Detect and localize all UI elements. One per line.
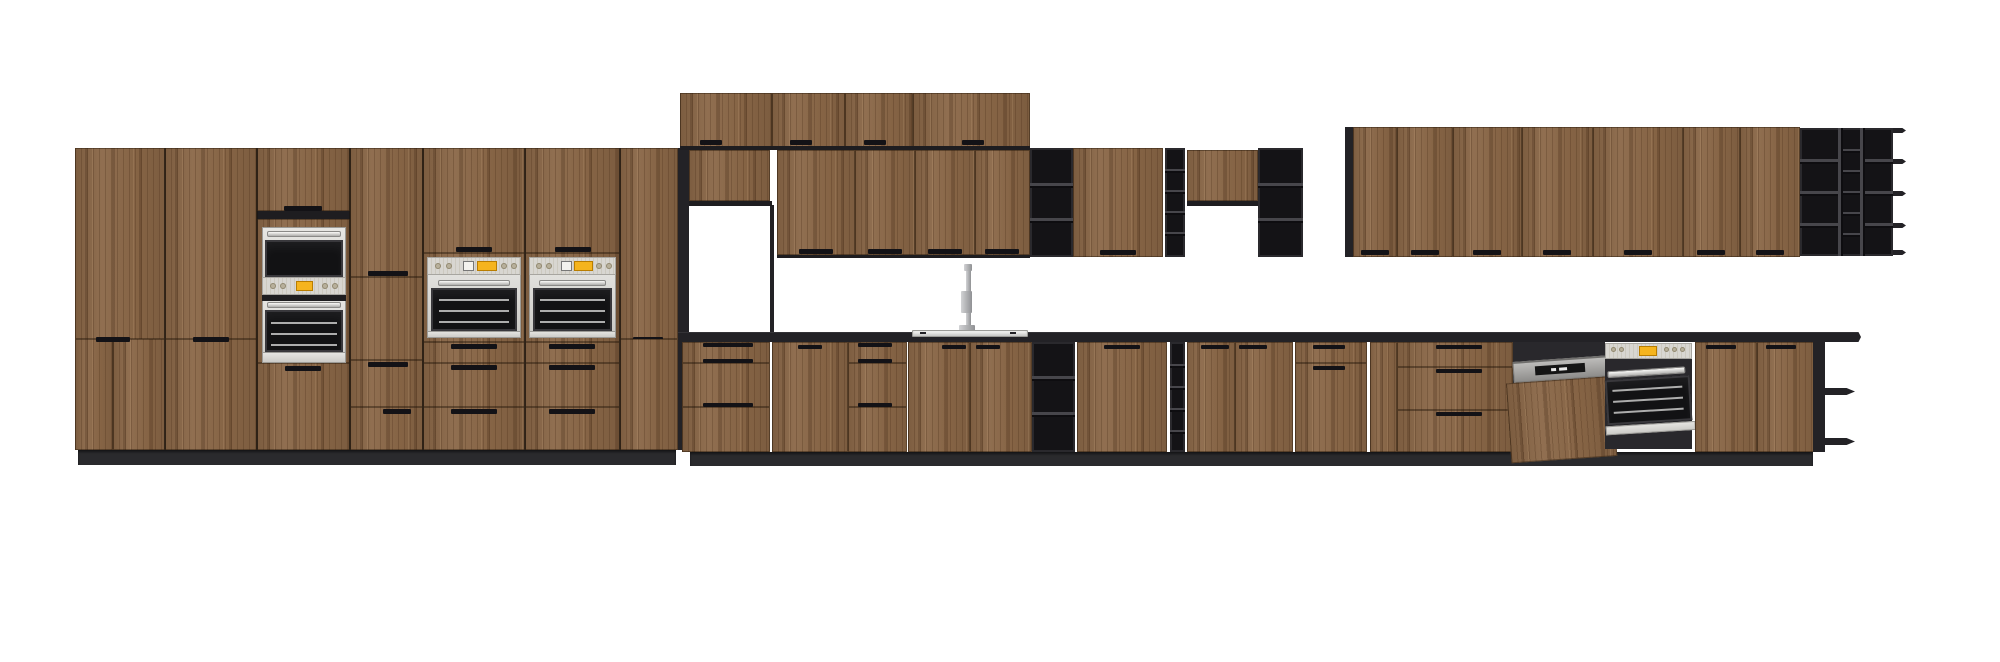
tall-cabinet-door[interactable] <box>165 148 257 339</box>
shelf-board <box>1800 223 1838 228</box>
oven-handle <box>267 302 341 308</box>
program-icon <box>561 261 572 271</box>
cabinet-seam <box>256 148 258 450</box>
wall-cabinet-door[interactable] <box>689 150 770 201</box>
oven-display <box>1639 346 1657 356</box>
cabinet-handle[interactable] <box>451 344 497 349</box>
wall-oven[interactable] <box>529 257 616 338</box>
cabinet-seam <box>619 148 621 450</box>
control-dial[interactable] <box>1611 347 1616 352</box>
oven-rack <box>1613 397 1683 403</box>
open-shelf-unit[interactable] <box>1032 342 1075 452</box>
oven-rack <box>271 344 337 346</box>
cabinet-handle[interactable] <box>549 344 595 349</box>
shelf-board <box>1170 408 1185 412</box>
base-cabinet-door[interactable] <box>1235 342 1293 452</box>
cabinet-handle[interactable] <box>1361 250 1389 255</box>
control-dial[interactable] <box>536 263 542 269</box>
control-dial[interactable] <box>501 263 507 269</box>
oven-window <box>431 288 517 331</box>
oven-control-panel <box>529 257 616 275</box>
tall-cabinet-door[interactable] <box>75 339 113 450</box>
open-shelf-unit[interactable] <box>1258 148 1303 257</box>
cabinet-handle[interactable] <box>864 140 886 145</box>
cabinet-handle[interactable] <box>858 403 892 407</box>
cabinet-seam <box>524 148 526 450</box>
wall-cabinet-door[interactable] <box>680 93 772 148</box>
oven-gap <box>262 295 346 301</box>
end-shelf-board <box>1825 438 1855 445</box>
microwave-window <box>265 240 343 277</box>
cabinet-handle[interactable] <box>193 337 229 342</box>
shelf-edge-tab <box>1893 191 1906 196</box>
wall-cabinet-door[interactable] <box>1683 127 1740 257</box>
oven-control-panel <box>427 257 521 275</box>
oven-window <box>265 310 343 352</box>
cabinet-handle[interactable] <box>1756 250 1784 255</box>
shelf-board <box>1165 169 1185 173</box>
cabinet-handle[interactable] <box>858 359 892 363</box>
cabinet-handle[interactable] <box>1313 366 1345 370</box>
wall-cabinet-door[interactable] <box>1593 127 1683 257</box>
wall-oven[interactable] <box>427 257 521 338</box>
cabinet-handle[interactable] <box>703 359 753 363</box>
base-cabinet-door[interactable] <box>772 342 848 452</box>
cabinet-handle[interactable] <box>383 409 411 414</box>
shelf-board <box>1800 191 1838 196</box>
control-dial[interactable] <box>1664 347 1669 352</box>
end-panel <box>1813 342 1825 452</box>
shelf-board <box>1843 233 1860 237</box>
shelf-board <box>1030 183 1073 188</box>
wall-cabinet-door[interactable] <box>855 150 915 255</box>
cabinet-seam <box>349 148 351 450</box>
faucet-cap <box>964 264 972 271</box>
base-cabinet-door[interactable] <box>1187 342 1235 452</box>
cabinet-handle[interactable] <box>451 365 497 370</box>
end-shelf-board <box>1825 388 1855 395</box>
oven-rack <box>439 310 509 312</box>
base-cabinet-door[interactable] <box>1695 342 1757 452</box>
microwave-display <box>296 281 313 291</box>
tall-cabinet-door[interactable] <box>113 339 165 450</box>
base-cabinet-door[interactable] <box>1757 342 1815 452</box>
wall-cabinet-door[interactable] <box>1073 148 1163 257</box>
cabinet-handle[interactable] <box>1436 369 1482 373</box>
shelf-board <box>1032 376 1075 381</box>
kitchen-elevation-canvas: Kitchen cabinetry elevation render <box>0 0 2000 662</box>
oven-rack <box>540 299 605 301</box>
microwave-control-panel <box>262 277 346 295</box>
open-shelf-unit[interactable] <box>1800 128 1893 256</box>
drawer-front[interactable] <box>848 407 907 452</box>
control-dial[interactable] <box>1672 347 1677 352</box>
base-cabinet-door[interactable] <box>1295 363 1367 452</box>
cabinet-handle[interactable] <box>368 271 408 276</box>
tall-plinth <box>78 450 676 465</box>
built-in-oven-door[interactable] <box>1602 365 1696 436</box>
control-dial[interactable] <box>1619 347 1624 352</box>
cabinet-handle[interactable] <box>976 345 1000 349</box>
oven-display <box>477 261 497 271</box>
wall-cabinet-door[interactable] <box>1397 127 1453 257</box>
oven-window <box>533 288 612 331</box>
oven-display <box>574 261 593 271</box>
wall-cabinet-door[interactable] <box>1740 127 1800 257</box>
shelf-board <box>1030 218 1073 223</box>
tall-cabinet-door[interactable] <box>423 148 525 253</box>
shelf-board <box>1165 232 1185 236</box>
wall-cabinet-shadow <box>1187 201 1260 206</box>
oven-bottom-trim <box>427 331 521 338</box>
oven-rack <box>439 299 509 301</box>
cabinet-handle[interactable] <box>858 343 892 347</box>
tall-cabinet-door[interactable] <box>165 339 257 450</box>
cabinet-handle[interactable] <box>1624 250 1652 255</box>
control-dial[interactable] <box>435 263 441 269</box>
shelf-board <box>1170 430 1185 434</box>
control-dial[interactable] <box>270 283 276 289</box>
control-dial[interactable] <box>546 263 552 269</box>
tall-cabinet-door[interactable] <box>525 148 620 253</box>
cabinet-handle[interactable] <box>1436 412 1482 416</box>
dishwasher[interactable] <box>1504 352 1619 463</box>
shelf-board <box>1843 191 1860 195</box>
shelf-board <box>1170 364 1185 368</box>
drawer-front[interactable] <box>350 277 423 360</box>
shelf-board <box>1258 183 1303 188</box>
wall-cabinet-door[interactable] <box>915 150 975 255</box>
cabinet-side-panel <box>1345 127 1353 257</box>
tall-cabinet-door[interactable] <box>620 148 678 339</box>
cabinet-handle[interactable] <box>1766 345 1796 349</box>
microwave[interactable] <box>262 227 346 295</box>
cabinet-handle[interactable] <box>1411 250 1439 255</box>
window-frame <box>770 205 774 332</box>
cabinet-handle[interactable] <box>928 249 962 254</box>
cabinet-handle[interactable] <box>285 366 321 371</box>
wall-cabinet-shadow <box>777 255 1030 258</box>
tall-cabinet-door[interactable] <box>350 148 423 277</box>
tower-shadow <box>257 211 350 219</box>
control-dial[interactable] <box>322 283 328 289</box>
cabinet-handle[interactable] <box>549 365 595 370</box>
base-cabinet-door[interactable] <box>970 342 1032 452</box>
program-icon <box>463 261 474 271</box>
cabinet-handle[interactable] <box>962 140 984 145</box>
cabinet-handle[interactable] <box>451 409 497 414</box>
oven-control-panel <box>1605 343 1692 359</box>
control-dial[interactable] <box>596 263 602 269</box>
oven-handle <box>539 280 606 286</box>
base-cabinet-door[interactable] <box>908 342 970 452</box>
shelf-board <box>1800 159 1838 164</box>
wall-cabinet-door[interactable] <box>777 150 855 255</box>
control-dial[interactable] <box>606 263 612 269</box>
wall-cabinet-shadow <box>689 201 772 206</box>
shelf-board <box>1843 149 1860 153</box>
oven-rack <box>1614 408 1684 414</box>
oven-rack <box>540 310 605 312</box>
control-dial[interactable] <box>1680 347 1685 352</box>
drawer-front[interactable] <box>1397 367 1513 410</box>
drawer-front[interactable] <box>350 360 423 407</box>
cabinet-handle[interactable] <box>1697 250 1725 255</box>
filler-panel <box>1370 342 1397 452</box>
control-dial[interactable] <box>446 263 452 269</box>
drawer-front[interactable] <box>682 363 770 407</box>
drawer-front[interactable] <box>848 363 907 407</box>
tower-oven[interactable] <box>262 295 346 363</box>
oven-rack <box>439 321 509 323</box>
shelf-board <box>1170 386 1185 390</box>
wall-cabinet-door[interactable] <box>975 150 1030 255</box>
appliance-tower-top-door[interactable] <box>257 148 350 211</box>
cabinet-handle[interactable] <box>985 249 1019 254</box>
drawer-front[interactable] <box>1397 410 1513 452</box>
cabinet-handle[interactable] <box>700 140 722 145</box>
oven-window <box>1605 375 1693 425</box>
wall-cabinet-door[interactable] <box>1522 127 1593 257</box>
control-dial[interactable] <box>511 263 517 269</box>
oven-bottom-trim <box>262 352 346 363</box>
cabinet-handle[interactable] <box>456 247 492 252</box>
shelf-board <box>1165 211 1185 215</box>
open-shelf-column[interactable] <box>1170 342 1185 452</box>
shelf-edge-tab <box>1893 223 1906 228</box>
cabinet-handle[interactable] <box>1436 345 1482 349</box>
open-shelf-unit[interactable] <box>1030 148 1073 257</box>
cabinet-seam <box>422 148 424 450</box>
oven-rack <box>1612 386 1682 392</box>
cabinet-handle[interactable] <box>1201 345 1229 349</box>
base-plinth <box>690 452 1813 466</box>
tall-cabinet-door[interactable] <box>620 339 678 450</box>
shelf-board <box>1843 170 1860 174</box>
cabinet-handle[interactable] <box>1706 345 1736 349</box>
wall-cabinet-door[interactable] <box>1353 127 1397 257</box>
faucet-head <box>961 291 972 313</box>
cabinet-handle[interactable] <box>790 140 812 145</box>
cabinet-handle[interactable] <box>703 403 753 407</box>
cabinet-handle[interactable] <box>942 345 966 349</box>
shelf-board <box>1258 218 1303 223</box>
cabinet-handle[interactable] <box>1473 250 1501 255</box>
control-dial[interactable] <box>280 283 286 289</box>
appliance-tower-bottom-panel[interactable] <box>257 363 350 450</box>
base-cabinet-door[interactable] <box>1077 342 1167 452</box>
indicator-light <box>1559 367 1567 371</box>
cabinet-handle[interactable] <box>1313 345 1345 349</box>
shelf-board <box>1165 190 1185 194</box>
cabinet-handle[interactable] <box>368 362 408 367</box>
drawer-front[interactable] <box>682 407 770 452</box>
shelf-board <box>1843 212 1860 216</box>
cabinet-seam <box>164 148 166 450</box>
shelf-edge-tab <box>1893 159 1906 164</box>
cabinet-handle[interactable] <box>549 409 595 414</box>
oven-handle <box>438 280 510 286</box>
open-shelf-column[interactable] <box>1165 148 1185 257</box>
shelf-edge-tab <box>1893 250 1906 255</box>
countertop-edge <box>1852 332 1861 342</box>
oven-rack <box>271 322 337 324</box>
cabinet-handle[interactable] <box>703 343 753 347</box>
window-frame <box>682 150 689 332</box>
shelf-board <box>1865 223 1893 228</box>
sink-detail <box>920 332 926 334</box>
microwave-handle <box>267 231 341 237</box>
cabinet-handle[interactable] <box>1104 345 1140 349</box>
cabinet-handle[interactable] <box>96 337 130 342</box>
oven-bottom-trim <box>529 331 616 338</box>
shelf-board <box>1865 159 1893 164</box>
indicator-light <box>1551 368 1556 371</box>
cabinet-handle[interactable] <box>798 345 822 349</box>
wall-cabinet-door[interactable] <box>1453 127 1522 257</box>
cabinet-handle[interactable] <box>868 249 902 254</box>
cabinet-handle[interactable] <box>555 247 591 252</box>
wall-cabinet-door[interactable] <box>1187 150 1258 201</box>
cabinet-handle[interactable] <box>1100 250 1136 255</box>
countertop <box>678 332 1852 342</box>
oven-rack <box>271 333 337 335</box>
oven-rack <box>540 321 605 323</box>
shelf-board <box>1032 412 1075 417</box>
tall-cabinet-door[interactable] <box>75 148 165 339</box>
cabinet-handle[interactable] <box>1239 345 1267 349</box>
control-dial[interactable] <box>332 283 338 289</box>
sink-detail <box>1010 332 1016 334</box>
shelf-edge-tab <box>1893 128 1906 133</box>
shelf-board <box>1865 191 1893 196</box>
cabinet-handle[interactable] <box>799 249 833 254</box>
cabinet-handle[interactable] <box>1543 250 1571 255</box>
dishwasher-door-panel <box>1506 376 1617 463</box>
